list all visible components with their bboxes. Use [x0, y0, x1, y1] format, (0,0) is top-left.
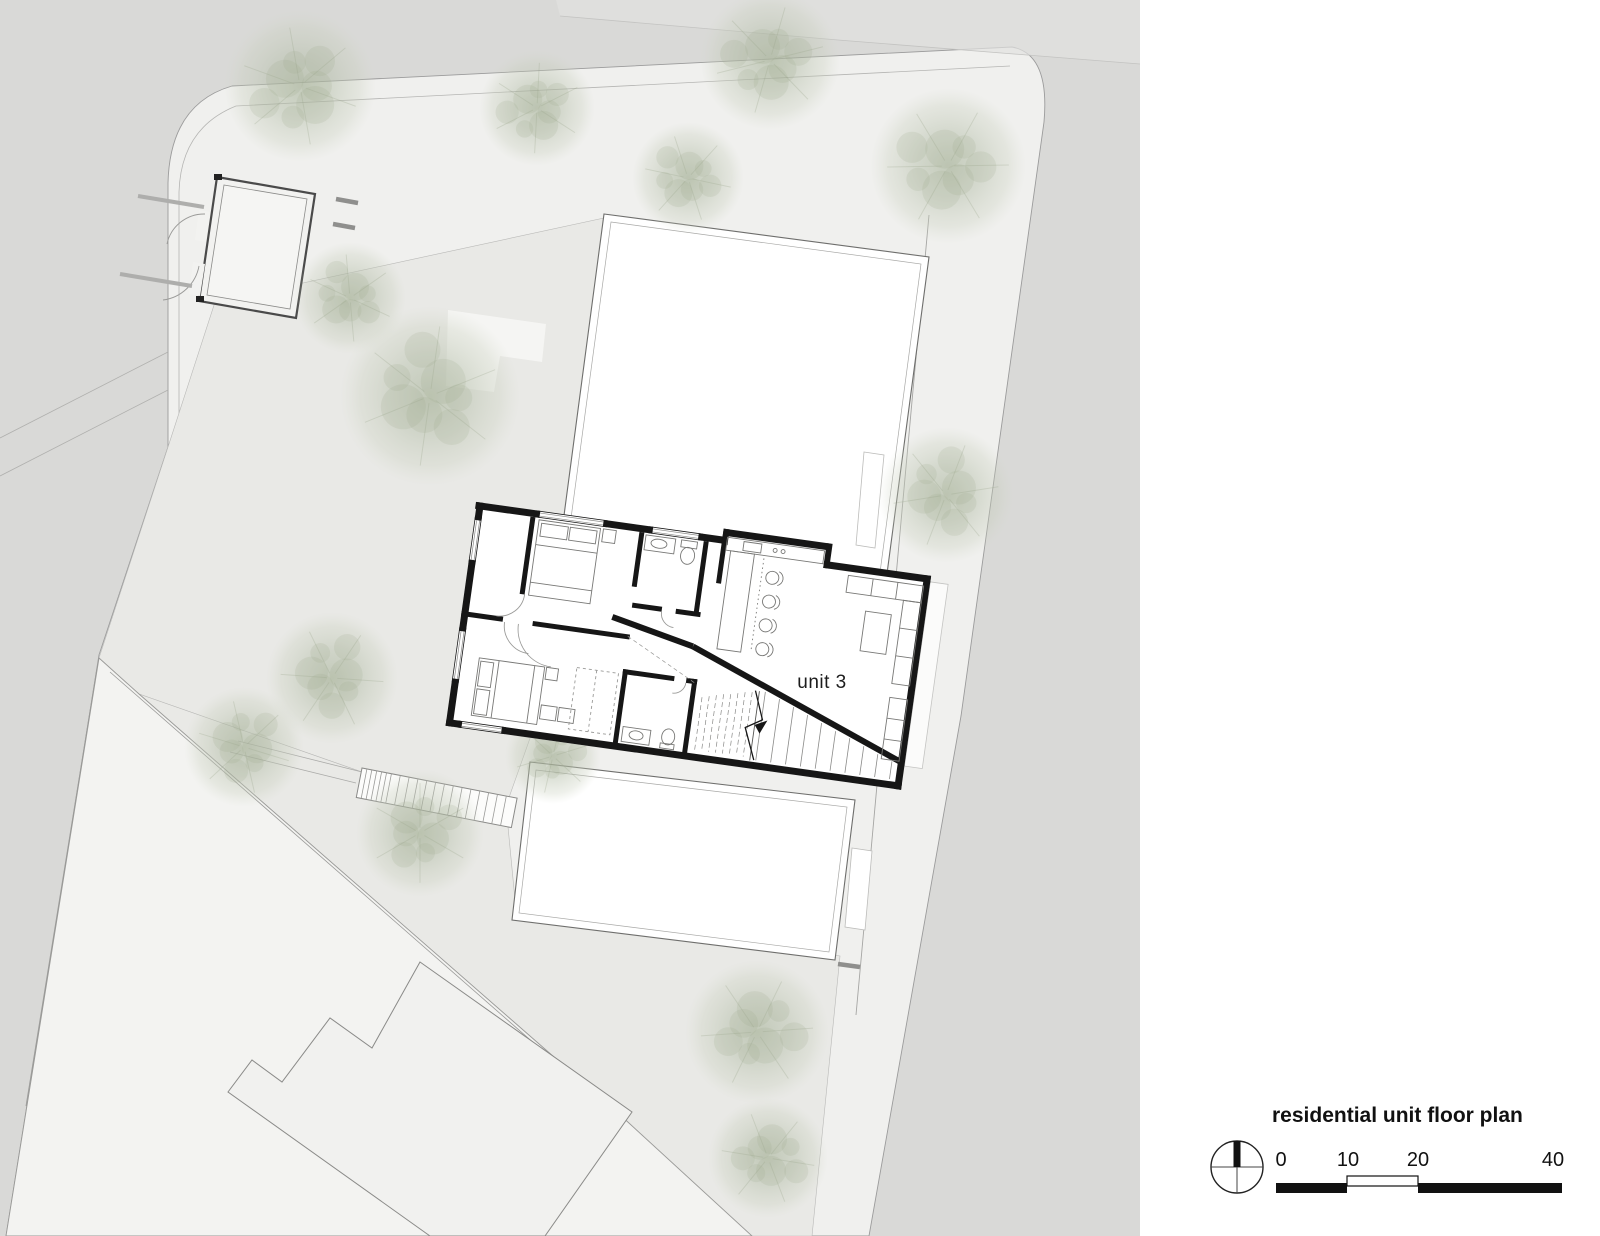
- tree: [870, 88, 1026, 244]
- scale-label-10: 10: [1337, 1149, 1359, 1171]
- north-arrow-icon: [1211, 1141, 1263, 1193]
- tree: [184, 687, 304, 807]
- drawing-title: residential unit floor plan: [1272, 1104, 1523, 1127]
- scale-label-20: 20: [1407, 1149, 1429, 1171]
- legend: residential unit floor plan 0 10 20 40: [1211, 1104, 1564, 1193]
- architectural-sheet: unit 3 residential unit floor plan 0 10 …: [0, 0, 1600, 1236]
- tree: [479, 50, 595, 166]
- wall-stub: [196, 296, 204, 302]
- scale-segment-white: [1347, 1176, 1418, 1186]
- scale-label-40: 40: [1542, 1149, 1564, 1171]
- site-plan-canvas: unit 3 residential unit floor plan 0 10 …: [0, 0, 1600, 1236]
- tree: [685, 960, 829, 1104]
- wall-stub: [214, 174, 222, 180]
- tree: [708, 1098, 828, 1218]
- tree: [224, 10, 376, 162]
- unit-label: unit 3: [797, 672, 846, 693]
- scale-bar: 0 10 20 40: [1275, 1149, 1564, 1193]
- scale-label-0: 0: [1275, 1149, 1286, 1171]
- scale-segment-black: [1276, 1183, 1347, 1193]
- tree: [340, 306, 520, 486]
- tree: [878, 427, 1014, 563]
- scale-segment-black: [1418, 1183, 1562, 1193]
- tree: [356, 769, 484, 897]
- tree: [632, 122, 744, 234]
